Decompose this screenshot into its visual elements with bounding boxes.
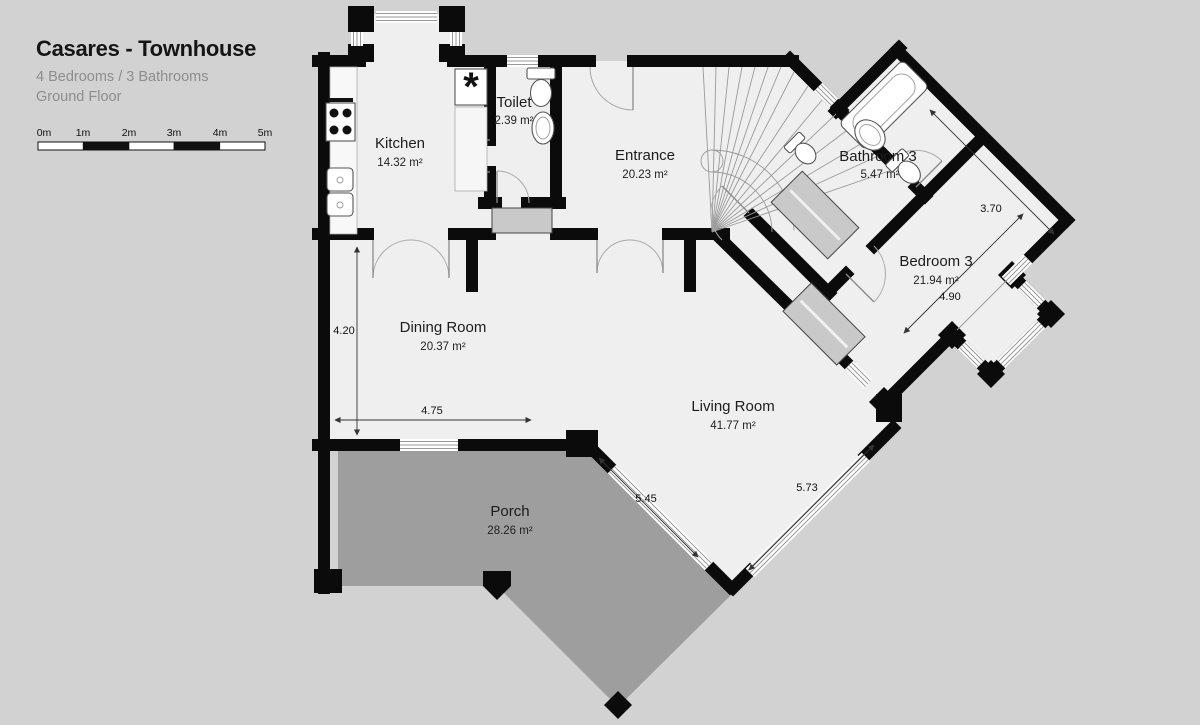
svg-text:2m: 2m [122,127,137,139]
plan-header: Casares - Townhouse 4 Bedrooms / 3 Bathr… [36,36,256,105]
svg-text:14.32 m²: 14.32 m² [377,157,423,169]
svg-text:0m: 0m [37,127,52,139]
svg-text:4m: 4m [213,127,228,139]
svg-text:5.47 m²: 5.47 m² [861,169,900,181]
svg-text:2.39 m²: 2.39 m² [495,115,534,127]
svg-text:5m: 5m [258,127,273,139]
svg-text:28.26 m²: 28.26 m² [487,525,533,537]
svg-text:3m: 3m [167,127,182,139]
svg-text:Kitchen: Kitchen [375,135,425,152]
svg-text:Porch: Porch [490,503,529,520]
svg-text:1m: 1m [76,127,91,139]
scale-bar: 0m 1m 2m 3m 4m 5m [37,127,273,150]
svg-text:Living Room: Living Room [691,398,774,415]
plan-title: Casares - Townhouse [36,36,256,62]
scale-bar-segments [38,142,265,150]
stove [326,98,355,141]
dim-bedroom-ne: 3.70 [980,203,1001,215]
dim-dining-height: 4.20 [333,325,354,337]
floor-plan: * [0,0,1200,725]
appliance-asterisk: * [455,65,487,191]
plan-subtitle: 4 Bedrooms / 3 Bathrooms [36,69,256,85]
svg-text:Dining Room: Dining Room [400,319,487,336]
toilet-window [507,58,538,65]
svg-text:Toilet: Toilet [496,94,532,111]
svg-text:Bedroom 3: Bedroom 3 [899,253,972,270]
svg-text:21.94 m²: 21.94 m² [913,275,959,287]
svg-text:20.23 m²: 20.23 m² [622,169,668,181]
svg-text:Bathroom 3: Bathroom 3 [839,148,917,165]
svg-text:41.77 m²: 41.77 m² [710,420,756,432]
hall-closet [492,208,552,233]
appliance-symbol: * [463,65,479,109]
dim-living-sw: 5.45 [635,493,656,505]
room-label-toilet: Toilet 2.39 m² [495,94,534,127]
floor-areas [330,14,1067,707]
dining-window [400,442,458,449]
dim-living-se: 5.73 [796,482,817,494]
svg-text:Entrance: Entrance [615,147,675,164]
dim-dining-width: 4.75 [421,405,442,417]
toilet-sink [532,112,554,144]
svg-text:20.37 m²: 20.37 m² [420,341,466,353]
plan-floor-label: Ground Floor [36,89,256,105]
dim-bedroom-se: 4.90 [939,291,960,303]
